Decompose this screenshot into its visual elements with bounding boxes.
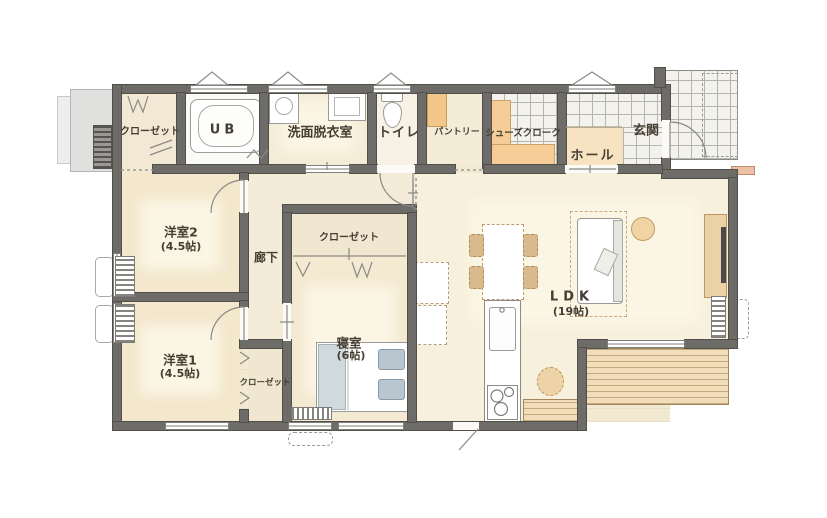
closet-pole [293,248,406,260]
room-size-ldk: (19帖) [553,303,589,319]
floor-plan: クローゼット UB 洗面脱衣室 トイレ パントリー シューズクローク ホール 玄… [0,0,827,518]
hanger-mark [296,262,310,276]
room-label-entrance: 玄関 [633,120,659,139]
room-label-western1-closet: クローゼット [239,376,290,388]
hanger-mark [352,262,372,277]
room-label-pantry: パントリー [434,125,479,138]
plan-symbols [0,0,827,518]
backdoor-swing [459,429,478,450]
room-label-hall: ホール [570,145,615,164]
room-label-ub: UB [210,123,238,138]
hanger-mark [128,96,148,112]
toilet-door-arc [380,173,413,206]
western1-door-arc [211,307,244,340]
room-label-bedroom-closet: クローゼット [319,229,379,244]
room-label-closet-top: クローゼット [120,123,180,138]
room-size-western2: (4.5帖) [161,238,202,254]
open-boundaries [121,170,484,210]
window-awning-marks [196,72,612,85]
room-size-bedroom: (6帖) [337,347,366,363]
folding-door-bath [247,150,268,158]
western2-door-arc [211,180,244,213]
room-label-corridor: 廊下 [254,249,278,266]
room-size-western1: (4.5帖) [160,365,201,381]
hall-sliding-door [569,165,616,173]
room-label-shoe-closet: シューズクローク [485,125,561,139]
cooktop-burners [491,388,514,416]
entrance-door-arc [670,122,706,158]
bedroom-sliding-door [280,305,294,339]
room-label-toilet: トイレ [378,122,420,141]
room-label-washroom: 洗面脱衣室 [287,122,352,141]
